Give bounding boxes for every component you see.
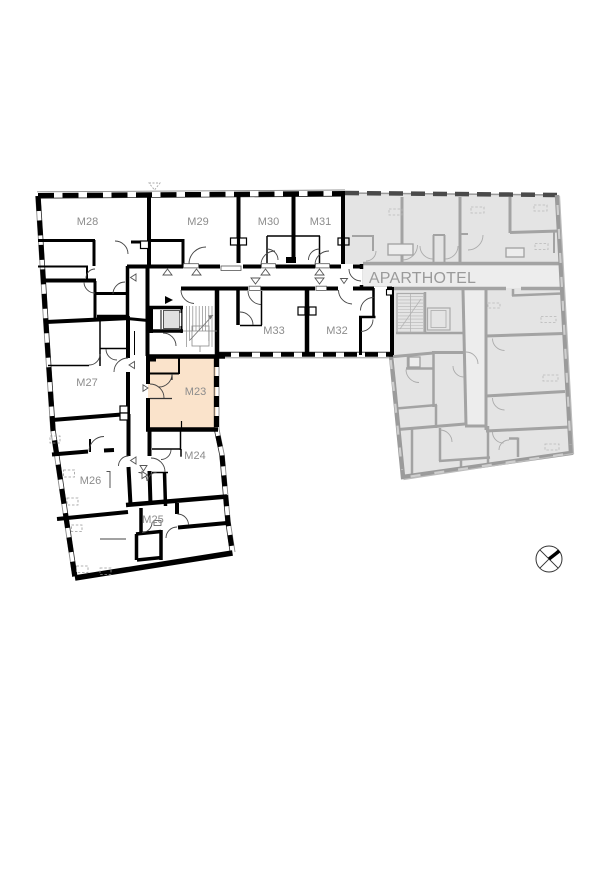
svg-text:M33: M33 (263, 325, 284, 337)
svg-text:M27: M27 (76, 377, 97, 389)
svg-text:M23: M23 (185, 386, 206, 398)
svg-text:M24: M24 (184, 450, 205, 462)
svg-text:M30: M30 (258, 216, 279, 228)
svg-text:M31: M31 (310, 216, 331, 228)
svg-text:APARTHOTEL: APARTHOTEL (369, 270, 476, 287)
svg-text:M32: M32 (326, 325, 347, 337)
svg-text:M28: M28 (77, 216, 98, 228)
svg-text:M29: M29 (187, 216, 208, 228)
svg-text:M26: M26 (80, 475, 101, 487)
svg-text:M25: M25 (142, 514, 163, 526)
